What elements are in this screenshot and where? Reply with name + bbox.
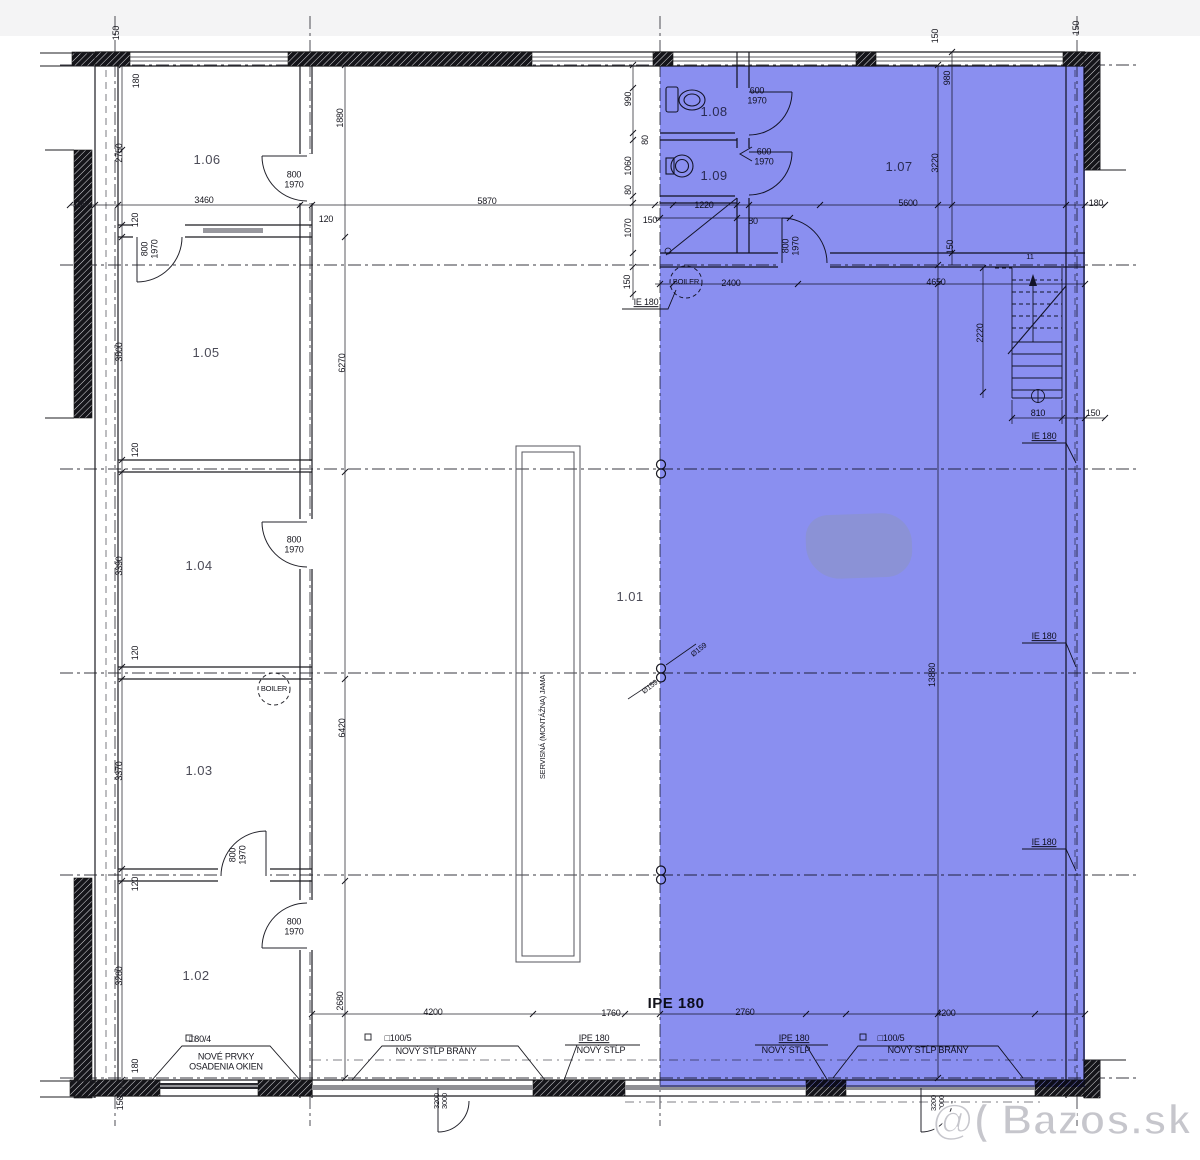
dim-label: 2760: [735, 1008, 754, 1018]
dim-label: 150: [946, 240, 956, 254]
dim-label: 180: [1089, 199, 1103, 209]
pipe-diameter-label: Ø159: [641, 678, 660, 695]
dim-label: 980: [943, 71, 953, 85]
dim-label: 120: [131, 877, 141, 891]
beam-label: IPE 180: [579, 1034, 610, 1044]
callout-size: □80/4: [189, 1035, 211, 1045]
dim-label: 3370: [115, 761, 125, 780]
dim-label: 3280: [115, 966, 125, 985]
dim-label: 2220: [976, 323, 986, 342]
dim-label: 180: [132, 74, 142, 88]
dim-label: 1760: [601, 1009, 620, 1019]
dim-label: 4200: [423, 1008, 442, 1018]
beam-label: IPE 180: [779, 1034, 810, 1044]
dim-label: 80: [748, 217, 758, 227]
callout-new-post: NOVÝ STĹP: [762, 1046, 811, 1056]
dim-label: 120: [131, 646, 141, 660]
boiler-label: BOILER: [673, 278, 699, 286]
boiler-label: BOILER: [261, 685, 287, 693]
room-label-1-07: 1.07: [886, 160, 913, 174]
dim-label: 2750: [115, 143, 125, 162]
dim-label: 120: [319, 215, 333, 225]
callout-size: □100/5: [385, 1034, 412, 1044]
beam-label: IE 180: [1032, 632, 1057, 642]
dim-label: 80: [624, 185, 634, 195]
dim-label: 2400: [721, 279, 740, 289]
dim-label: 150: [112, 26, 122, 40]
room-label-1-09: 1.09: [701, 169, 728, 183]
dim-label: 1070: [624, 218, 634, 237]
dim-label: 990: [624, 92, 634, 106]
dim-label: 2680: [336, 991, 346, 1010]
callout-new-post: NOVÝ STĹP: [577, 1046, 626, 1056]
dim-label: 150: [931, 29, 941, 43]
watermark: @( Bazos.sk: [932, 1096, 1192, 1144]
door-size-label: 800 1970: [284, 917, 303, 936]
dim-label: 150: [1086, 409, 1100, 419]
callout-new-gate-post: NOVÝ STĹP BRÁNY: [888, 1046, 969, 1056]
dim-label: 180: [73, 200, 87, 210]
door-size-label: 800 1970: [284, 535, 303, 554]
dim-label: 3220: [931, 153, 941, 172]
gate-size-label: 3200 3000: [433, 1093, 449, 1109]
beam-label: IE 180: [1032, 838, 1057, 848]
dim-label: 1060: [624, 156, 634, 175]
dim-label: 13880: [928, 663, 938, 687]
dim-label: 810: [1031, 409, 1045, 419]
dim-label: 180: [131, 1059, 141, 1073]
door-size-label: 800 1970: [228, 845, 247, 864]
dim-label: 1880: [336, 108, 346, 127]
dim-label: 120: [131, 443, 141, 457]
dim-label: 150: [116, 1096, 126, 1110]
dim-label: 4200: [936, 1009, 955, 1019]
dim-label: 80: [641, 135, 651, 145]
dim-label: 5870: [477, 197, 496, 207]
room-label-1-05: 1.05: [193, 346, 220, 360]
floor-plan-canvas: 15018027501.06800 1970188034601801201205…: [0, 0, 1200, 1160]
dim-label: 150: [643, 216, 657, 226]
door-size-label: 600 1970: [754, 147, 773, 166]
beam-label: IPE 180: [648, 996, 705, 1012]
dim-label: 6420: [338, 718, 348, 737]
room-label-1-04: 1.04: [186, 559, 213, 573]
room-label-1-01: 1.01: [617, 590, 644, 604]
door-size-label: 800 1970: [781, 236, 800, 255]
callout-new-gate-post: NOVÝ STĹP BRÁNY: [396, 1047, 477, 1057]
pipe-diameter-label: Ø159: [690, 641, 709, 658]
dim-label: 1220: [694, 201, 713, 211]
door-size-label: 600 1970: [747, 86, 766, 105]
room-label-1-06: 1.06: [194, 153, 221, 167]
callout-new-window-elements: NOVÉ PRVKY OSADENIA OKIEN: [189, 1052, 263, 1071]
dim-label: 3390: [115, 556, 125, 575]
room-label-1-02: 1.02: [183, 969, 210, 983]
room-label-1-03: 1.03: [186, 764, 213, 778]
door-size-label: 800 1970: [140, 239, 159, 258]
service-pit-label: SERVISNÁ (MONTÁŽNA) JAMA: [539, 675, 547, 779]
dim-label: 4650: [926, 278, 945, 288]
dim-label: 11: [1026, 253, 1033, 261]
dim-label: 6270: [338, 353, 348, 372]
dim-label: 3800: [115, 342, 125, 361]
callout-size: □100/5: [878, 1034, 905, 1044]
redaction-blob: [805, 512, 913, 580]
dim-label: 150: [1072, 21, 1082, 35]
door-size-label: 800 1970: [284, 170, 303, 189]
annotation-layer: 15018027501.06800 1970188034601801201205…: [0, 0, 1200, 1160]
beam-label: IE 180: [634, 298, 659, 308]
dim-label: 3460: [194, 196, 213, 206]
dim-label: 5600: [898, 199, 917, 209]
beam-label: IE 180: [1032, 432, 1057, 442]
dim-label: 120: [131, 213, 141, 227]
dim-label: 150: [623, 275, 633, 289]
room-label-1-08: 1.08: [701, 105, 728, 119]
